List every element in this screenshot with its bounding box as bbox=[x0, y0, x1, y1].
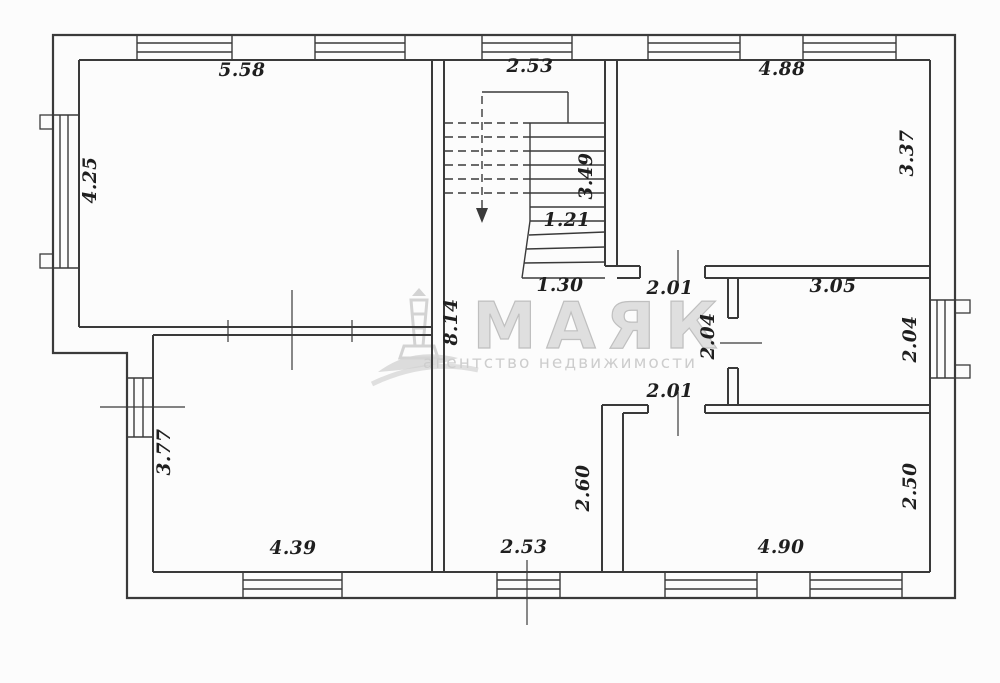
stair-line bbox=[526, 247, 605, 249]
stair-direction-arrow bbox=[476, 208, 488, 223]
window-sill bbox=[955, 300, 970, 313]
dimension-label: 2.53 bbox=[505, 56, 553, 77]
dimension-label: 4.39 bbox=[269, 538, 316, 559]
dimension-label: 3.05 bbox=[809, 276, 856, 297]
dimension-label: 2.53 bbox=[499, 537, 547, 558]
dimension-label: 3.37 bbox=[897, 129, 918, 176]
watermark-subtitle: агентство недвижимости bbox=[423, 353, 697, 373]
window-sill bbox=[40, 254, 53, 268]
dimension-label: 3.49 bbox=[576, 152, 597, 199]
window-sill bbox=[955, 365, 970, 378]
dimension-label: 8.14 bbox=[441, 298, 462, 346]
floor-plan: МАЯКагентство недвижимости5.582.534.884.… bbox=[0, 0, 1000, 683]
dimension-label: 2.01 bbox=[645, 381, 693, 402]
stair-line bbox=[529, 232, 605, 235]
dimension-label: 4.25 bbox=[80, 156, 101, 203]
dimension-label: 2.04 bbox=[698, 312, 719, 360]
stair-line bbox=[524, 262, 605, 263]
dimension-label: 2.01 bbox=[645, 278, 693, 299]
dimension-label: 2.04 bbox=[900, 315, 921, 363]
dimension-label: 1.30 bbox=[536, 275, 583, 296]
dimension-label: 2.50 bbox=[900, 462, 921, 510]
floor-plan-page: МАЯКагентство недвижимости5.582.534.884.… bbox=[0, 0, 1000, 683]
dimension-label: 4.90 bbox=[757, 537, 804, 558]
dimension-label: 5.58 bbox=[218, 60, 265, 81]
dimension-label: 1.21 bbox=[543, 210, 590, 231]
dimension-label: 3.77 bbox=[154, 428, 175, 475]
dimension-label: 2.60 bbox=[573, 464, 594, 512]
dimension-label: 4.88 bbox=[758, 59, 805, 80]
window-sill bbox=[40, 115, 53, 129]
